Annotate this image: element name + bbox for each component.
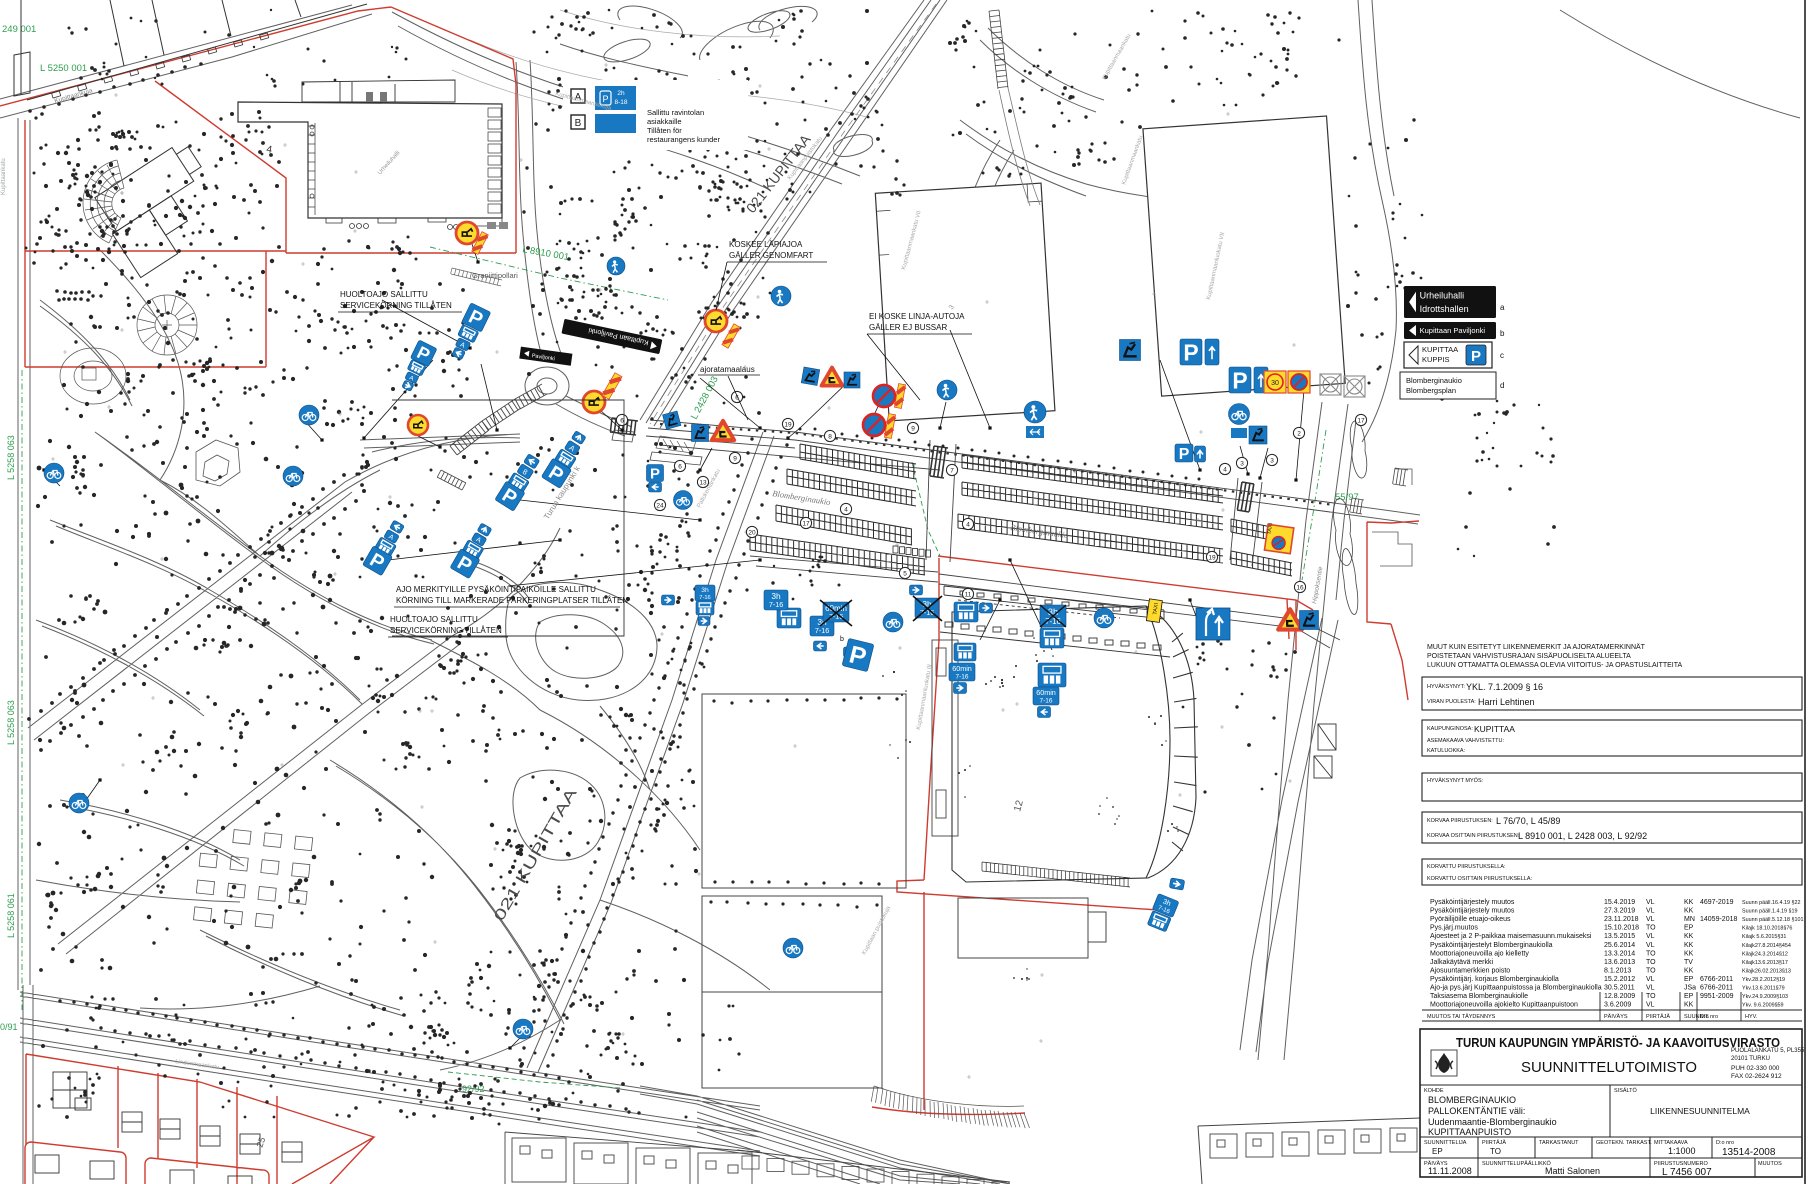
svg-text:KUPITTAA: KUPITTAA bbox=[1474, 724, 1515, 734]
svg-text:VL: VL bbox=[1646, 899, 1655, 906]
svg-text:17: 17 bbox=[802, 520, 810, 527]
svg-text:Kilajk26.02.2013§13: Kilajk26.02.2013§13 bbox=[1742, 968, 1791, 974]
svg-text:13514-2008: 13514-2008 bbox=[1722, 1147, 1776, 1158]
svg-text:27.3.2019: 27.3.2019 bbox=[1604, 908, 1635, 915]
svg-text:Kupittaan Paviljonki: Kupittaan Paviljonki bbox=[1420, 326, 1486, 335]
svg-text:Graniittipollari: Graniittipollari bbox=[472, 271, 518, 280]
svg-text:VL: VL bbox=[1646, 933, 1655, 940]
svg-text:8: 8 bbox=[828, 433, 832, 440]
svg-text:ASEMAKAAVA VAHVISTETTU:: ASEMAKAAVA VAHVISTETTU: bbox=[1427, 738, 1504, 744]
svg-text:PÄIVÄYS: PÄIVÄYS bbox=[1604, 1013, 1628, 1020]
svg-text:TO: TO bbox=[1646, 925, 1656, 932]
svg-text:30.5.2011: 30.5.2011 bbox=[1604, 985, 1635, 992]
svg-text:asiakkaille: asiakkaille bbox=[647, 117, 682, 126]
svg-text:Kilajk13.6.2013§17: Kilajk13.6.2013§17 bbox=[1742, 960, 1788, 966]
svg-text:Blomberginaukio: Blomberginaukio bbox=[1406, 376, 1462, 385]
svg-text:25.6.2014: 25.6.2014 bbox=[1604, 942, 1635, 949]
svg-text:Pys.järj.muutos: Pys.järj.muutos bbox=[1430, 925, 1478, 932]
svg-text:19: 19 bbox=[1208, 554, 1216, 561]
svg-text:Urheiluhalli: Urheiluhalli bbox=[1420, 290, 1465, 300]
svg-text:Sallittu ravintolan: Sallittu ravintolan bbox=[647, 108, 704, 117]
svg-text:60min: 60min bbox=[952, 664, 972, 673]
svg-text:7-16: 7-16 bbox=[699, 595, 711, 601]
svg-text:Taksiasema Blomberginaukiolle: Taksiasema Blomberginaukiolle bbox=[1430, 993, 1528, 1000]
svg-text:KK: KK bbox=[1684, 1002, 1694, 1009]
svg-text:LUKUUN OTTAMATTA OLEMASSA OLEV: LUKUUN OTTAMATTA OLEMASSA OLEVIA VIITOIT… bbox=[1427, 662, 1682, 669]
svg-text:VL: VL bbox=[1646, 1002, 1655, 1009]
svg-text:Ajosuuntamerkkien poisto: Ajosuuntamerkkien poisto bbox=[1430, 967, 1510, 974]
svg-text:KK: KK bbox=[1684, 899, 1694, 906]
svg-text:VL: VL bbox=[1646, 976, 1655, 983]
svg-text:4697-2019: 4697-2019 bbox=[1700, 899, 1734, 906]
svg-text:P: P bbox=[1471, 348, 1481, 365]
svg-text:MN: MN bbox=[1684, 916, 1695, 923]
svg-text:GÄLLER EJ BUSSAR: GÄLLER EJ BUSSAR bbox=[869, 323, 947, 332]
svg-text:13: 13 bbox=[699, 479, 707, 486]
svg-text:Kilajk 5.6.2015§31: Kilajk 5.6.2015§31 bbox=[1742, 934, 1786, 940]
svg-text:7: 7 bbox=[950, 467, 954, 474]
svg-text:3: 3 bbox=[1240, 460, 1244, 467]
svg-text:EP: EP bbox=[1684, 993, 1694, 1000]
svg-text:P: P bbox=[1232, 367, 1247, 393]
svg-text:P: P bbox=[1183, 339, 1198, 365]
svg-text:Ykv.24.9.2009§103: Ykv.24.9.2009§103 bbox=[1742, 994, 1788, 1000]
svg-text:Pysäköintijärjestely muutos: Pysäköintijärjestely muutos bbox=[1430, 908, 1515, 915]
svg-text:KK: KK bbox=[1684, 942, 1694, 949]
svg-text:15.2.2012: 15.2.2012 bbox=[1604, 976, 1635, 983]
svg-text:Suunn pääll.5.12.18 §101: Suunn pääll.5.12.18 §101 bbox=[1742, 917, 1803, 923]
svg-text:P: P bbox=[602, 94, 608, 104]
svg-text:SUUNNITTELUPÄÄLLIKKÖ: SUUNNITTELUPÄÄLLIKKÖ bbox=[1482, 1160, 1551, 1167]
svg-text:3h: 3h bbox=[701, 587, 709, 594]
svg-text:8-18: 8-18 bbox=[614, 99, 627, 106]
svg-text:13.3.2014: 13.3.2014 bbox=[1604, 950, 1635, 957]
svg-text:SUUNNITTELIJA: SUUNNITTELIJA bbox=[1424, 1140, 1467, 1146]
svg-text:249 001: 249 001 bbox=[2, 24, 36, 35]
svg-text:23.11.2018: 23.11.2018 bbox=[1604, 916, 1639, 923]
svg-text:EP: EP bbox=[1684, 976, 1694, 983]
svg-text:YKL. 7.1.2009 § 16: YKL. 7.1.2009 § 16 bbox=[1466, 682, 1543, 692]
svg-text:SISÄLTÖ: SISÄLTÖ bbox=[1614, 1087, 1638, 1094]
svg-text:4: 4 bbox=[1223, 466, 1227, 473]
svg-text:19: 19 bbox=[784, 421, 792, 428]
svg-text:16: 16 bbox=[1296, 584, 1304, 591]
svg-text:Pysäköintijärj. korjaus Blombe: Pysäköintijärj. korjaus Blomberginaukiol… bbox=[1430, 976, 1559, 983]
svg-text:L 5258 061: L 5258 061 bbox=[6, 893, 16, 938]
svg-text:PIIRTÄJÄ: PIIRTÄJÄ bbox=[1646, 1013, 1670, 1020]
svg-text:Moottoriajoneuvoilla ajokielto: Moottoriajoneuvoilla ajokielto Kupittaan… bbox=[1430, 1002, 1578, 1009]
svg-text:0/91: 0/91 bbox=[0, 1022, 18, 1032]
svg-text:FAX 02-2624 912: FAX 02-2624 912 bbox=[1731, 1073, 1782, 1080]
svg-text:Kilajk 18.10.2018§76: Kilajk 18.10.2018§76 bbox=[1742, 926, 1792, 932]
svg-text:6: 6 bbox=[678, 463, 682, 470]
svg-text:Idrottshallen: Idrottshallen bbox=[1420, 304, 1469, 314]
svg-text:Suunn pääll.16.4.19 §22: Suunn pääll.16.4.19 §22 bbox=[1742, 900, 1800, 906]
svg-text:PALLOKENTÄNTIE väli:: PALLOKENTÄNTIE väli: bbox=[1428, 1106, 1525, 1116]
svg-text:6766-2011: 6766-2011 bbox=[1700, 985, 1733, 992]
svg-text:HUOLTOAJO SALLITTU: HUOLTOAJO SALLITTU bbox=[390, 615, 478, 624]
svg-text:a: a bbox=[1500, 303, 1505, 312]
svg-text:9: 9 bbox=[733, 455, 737, 462]
svg-text:AJO MERKITYILLE PYSÄKÖINTIPAIK: AJO MERKITYILLE PYSÄKÖINTIPAIKOILLE SALL… bbox=[396, 585, 596, 594]
svg-text:SERVICEKÖRNING TILLÅTEN: SERVICEKÖRNING TILLÅTEN bbox=[390, 626, 502, 635]
svg-text:d: d bbox=[1500, 381, 1504, 390]
svg-text:1:1000: 1:1000 bbox=[1668, 1146, 1696, 1156]
svg-text:Ajo-ja pys.järj Kupittaanpuist: Ajo-ja pys.järj Kupittaanpuistossa ja Bl… bbox=[1430, 985, 1602, 992]
svg-text:TV: TV bbox=[1684, 959, 1693, 966]
svg-text:b: b bbox=[840, 636, 844, 643]
svg-text:PIIRTÄJÄ: PIIRTÄJÄ bbox=[1482, 1139, 1506, 1146]
svg-text:KORVAA OSITTAIN PIIRUSTUKSEN:: KORVAA OSITTAIN PIIRUSTUKSEN: bbox=[1427, 833, 1520, 839]
svg-text:14059-2018: 14059-2018 bbox=[1700, 916, 1737, 923]
svg-text:TARKASTANUT: TARKASTANUT bbox=[1539, 1140, 1579, 1146]
svg-text:D:o nro: D:o nro bbox=[1700, 1014, 1718, 1020]
svg-text:TO: TO bbox=[1490, 1147, 1501, 1156]
svg-text:Ykv. 9.6.2009§59: Ykv. 9.6.2009§59 bbox=[1742, 1003, 1784, 1009]
svg-text:L 5250 001: L 5250 001 bbox=[40, 63, 87, 74]
svg-text:Blombergsplan: Blombergsplan bbox=[1406, 386, 1456, 395]
svg-text:4: 4 bbox=[966, 521, 970, 528]
svg-text:KORVAA PIIRUSTUKSEN:: KORVAA PIIRUSTUKSEN: bbox=[1427, 818, 1493, 824]
svg-text:13.5.2015: 13.5.2015 bbox=[1604, 933, 1635, 940]
svg-text:60min: 60min bbox=[1036, 688, 1056, 697]
svg-text:VIRAN PUOLESTA:: VIRAN PUOLESTA: bbox=[1427, 699, 1476, 705]
svg-text:GEOTEKN. TARKAST.: GEOTEKN. TARKAST. bbox=[1596, 1140, 1652, 1146]
svg-text:TO: TO bbox=[1646, 959, 1656, 966]
svg-text:HYVÄKSYNYT:: HYVÄKSYNYT: bbox=[1427, 683, 1465, 690]
svg-text:B: B bbox=[575, 118, 582, 129]
svg-text:VL: VL bbox=[1646, 942, 1655, 949]
svg-text:Kupittaankatu: Kupittaankatu bbox=[1, 158, 7, 195]
svg-text:Kilajk27.8.2014§454: Kilajk27.8.2014§454 bbox=[1742, 943, 1791, 949]
svg-text:Suunn pääll.1.4.19 §19: Suunn pääll.1.4.19 §19 bbox=[1742, 909, 1797, 915]
svg-text:Matti Salonen: Matti Salonen bbox=[1545, 1166, 1600, 1176]
svg-text:24: 24 bbox=[656, 502, 664, 509]
svg-text:VL: VL bbox=[1646, 908, 1655, 915]
svg-text:EP: EP bbox=[1684, 925, 1694, 932]
svg-text:11: 11 bbox=[965, 591, 972, 598]
svg-text:L 8910 001, L 2428 003, L 92/9: L 8910 001, L 2428 003, L 92/92 bbox=[1518, 831, 1647, 841]
svg-text:KK: KK bbox=[1684, 967, 1694, 974]
svg-text:GÄLLER GENOMFART: GÄLLER GENOMFART bbox=[729, 251, 813, 260]
svg-text:restaurangens kunder: restaurangens kunder bbox=[647, 135, 720, 144]
svg-text:TO: TO bbox=[1646, 993, 1656, 1000]
svg-text:9: 9 bbox=[911, 425, 915, 432]
svg-text:Pysäköintijärjestely muutos: Pysäköintijärjestely muutos bbox=[1430, 899, 1515, 906]
svg-text:Moottoriajoneuvoilla ajo kiell: Moottoriajoneuvoilla ajo kielletty bbox=[1430, 950, 1529, 957]
svg-text:LIIKENNESUUNNITELMA: LIIKENNESUUNNITELMA bbox=[1650, 1106, 1750, 1116]
svg-text:HYV.: HYV. bbox=[1745, 1014, 1758, 1020]
svg-text:7-16: 7-16 bbox=[1040, 697, 1053, 704]
svg-text:KUPITTAANPUISTO: KUPITTAANPUISTO bbox=[1428, 1127, 1511, 1137]
svg-text:SERVICEKÖRNING TILLÅTEN: SERVICEKÖRNING TILLÅTEN bbox=[340, 301, 452, 310]
svg-text:KATULUOKKA:: KATULUOKKA: bbox=[1427, 748, 1466, 754]
svg-text:HYVÄKSYNYT MYÖS:: HYVÄKSYNYT MYÖS: bbox=[1427, 777, 1484, 784]
svg-text:20: 20 bbox=[748, 529, 756, 536]
svg-text:7-16: 7-16 bbox=[815, 626, 829, 635]
svg-text:KOHDE: KOHDE bbox=[1424, 1088, 1444, 1094]
svg-text:HUOLTOAJO SALLITTU: HUOLTOAJO SALLITTU bbox=[340, 290, 428, 299]
svg-text:Uudenmaantie-Blomberginaukio: Uudenmaantie-Blomberginaukio bbox=[1428, 1117, 1557, 1127]
svg-text:MUUTOS TAI TÄYDENNYS: MUUTOS TAI TÄYDENNYS bbox=[1427, 1013, 1496, 1020]
svg-text:SUUNNITTELUTOIMISTO: SUUNNITTELUTOIMISTO bbox=[1521, 1059, 1697, 1076]
svg-text:6766-2011: 6766-2011 bbox=[1700, 976, 1733, 983]
svg-text:D:o nro: D:o nro bbox=[1716, 1140, 1734, 1146]
svg-text:13.6.2013: 13.6.2013 bbox=[1604, 959, 1635, 966]
svg-text:P: P bbox=[1179, 446, 1190, 463]
svg-text:TO: TO bbox=[1646, 950, 1656, 957]
svg-text:Pysäköintijärjestelyt Blomberg: Pysäköintijärjestelyt Blomberginaukiolla bbox=[1430, 942, 1553, 949]
svg-text:Ykv.13.6.2011§79: Ykv.13.6.2011§79 bbox=[1742, 986, 1785, 992]
svg-text:KORVATTU OSITTAIN PIIRUSTUKSEL: KORVATTU OSITTAIN PIIRUSTUKSELLA: bbox=[1427, 876, 1533, 882]
svg-text:L 5258 063: L 5258 063 bbox=[6, 435, 16, 480]
svg-text:KK: KK bbox=[1684, 950, 1694, 957]
svg-text:KK: KK bbox=[1684, 933, 1694, 940]
svg-text:Ajoesteet ja 2 P-paikkaa maise: Ajoesteet ja 2 P-paikkaa maisemasuunn.mu… bbox=[1430, 933, 1592, 940]
svg-text:11.11.2008: 11.11.2008 bbox=[1428, 1166, 1472, 1176]
svg-text:MUUT KUIN ESITETYT LIIKENNEMER: MUUT KUIN ESITETYT LIIKENNEMERKIT JA AJO… bbox=[1427, 643, 1646, 651]
svg-text:P: P bbox=[650, 465, 660, 482]
svg-text:3.6.2009: 3.6.2009 bbox=[1604, 1002, 1631, 1009]
svg-text:7-16: 7-16 bbox=[956, 673, 969, 680]
svg-text:PUOLALANKATU 5, PL355: PUOLALANKATU 5, PL355 bbox=[1731, 1048, 1805, 1054]
svg-text:KK: KK bbox=[1684, 908, 1694, 915]
svg-text:ajoratamaalaus: ajoratamaalaus bbox=[700, 365, 755, 374]
svg-text:KORVATTU PIIRUSTUKSELLA:: KORVATTU PIIRUSTUKSELLA: bbox=[1427, 864, 1506, 870]
svg-text:Kilajk24.3.2014§12: Kilajk24.3.2014§12 bbox=[1742, 951, 1788, 957]
svg-text:KUPPIS: KUPPIS bbox=[1422, 355, 1450, 364]
svg-text:20101 TURKU: 20101 TURKU bbox=[1731, 1056, 1770, 1062]
svg-text:3: 3 bbox=[1270, 457, 1274, 464]
svg-text:4: 4 bbox=[844, 506, 848, 513]
svg-text:KAUPUNGINOSA:: KAUPUNGINOSA: bbox=[1427, 726, 1473, 732]
svg-text:EP: EP bbox=[1432, 1147, 1443, 1156]
svg-text:KUPITTAA: KUPITTAA bbox=[1422, 345, 1458, 354]
svg-text:b: b bbox=[1500, 329, 1505, 338]
svg-text:L 7456 007: L 7456 007 bbox=[1662, 1167, 1712, 1178]
svg-text:L 5258 063: L 5258 063 bbox=[6, 700, 16, 745]
svg-text:KOSKEE LÄPIAJOA: KOSKEE LÄPIAJOA bbox=[729, 240, 803, 249]
svg-text:30: 30 bbox=[1271, 380, 1279, 387]
svg-text:15.10.2018: 15.10.2018 bbox=[1604, 925, 1639, 932]
svg-text:Pyöräilijöille etuajo-oikeus: Pyöräilijöille etuajo-oikeus bbox=[1430, 916, 1511, 923]
svg-text:EI KOSKE LINJA-AUTOJA: EI KOSKE LINJA-AUTOJA bbox=[869, 312, 965, 321]
svg-text:BLOMBERGINAUKIO: BLOMBERGINAUKIO bbox=[1428, 1095, 1516, 1105]
svg-text:9951-2009: 9951-2009 bbox=[1700, 993, 1734, 1000]
svg-text:7-16: 7-16 bbox=[769, 600, 783, 609]
svg-text:VL: VL bbox=[1646, 985, 1655, 992]
svg-text:VL: VL bbox=[1646, 916, 1655, 923]
svg-text:8.1.2013: 8.1.2013 bbox=[1604, 967, 1631, 974]
svg-text:JSa: JSa bbox=[1684, 985, 1696, 992]
svg-text:MUUTOS: MUUTOS bbox=[1758, 1161, 1782, 1167]
svg-text:L 76/70, L 45/89: L 76/70, L 45/89 bbox=[1496, 816, 1560, 826]
svg-text:POISTETAAN VAHVISTUSRAJAN SISÄ: POISTETAAN VAHVISTUSRAJAN SISÄPUOLISELTA… bbox=[1427, 652, 1631, 660]
svg-text:TO: TO bbox=[1646, 967, 1656, 974]
svg-text:Harri Lehtinen: Harri Lehtinen bbox=[1478, 697, 1535, 707]
svg-text:2h: 2h bbox=[617, 90, 625, 97]
svg-text:2: 2 bbox=[1297, 430, 1301, 437]
svg-text:Ykv.28.2.2012§19: Ykv.28.2.2012§19 bbox=[1742, 977, 1785, 983]
svg-text:KÖRNING TILL MARKERADE PARKERI: KÖRNING TILL MARKERADE PARKERINGPLATSER … bbox=[396, 596, 628, 605]
svg-text:17: 17 bbox=[1357, 417, 1365, 424]
svg-text:5: 5 bbox=[903, 570, 907, 577]
svg-text:Jalkakäytävä merkki: Jalkakäytävä merkki bbox=[1430, 959, 1493, 966]
svg-text:12.8.2009: 12.8.2009 bbox=[1604, 993, 1635, 1000]
svg-text:c: c bbox=[1500, 351, 1504, 360]
svg-text:Tillåten för: Tillåten för bbox=[647, 126, 682, 135]
svg-text:PUH 02-330 000: PUH 02-330 000 bbox=[1731, 1065, 1780, 1072]
svg-text:15.4.2019: 15.4.2019 bbox=[1604, 899, 1635, 906]
